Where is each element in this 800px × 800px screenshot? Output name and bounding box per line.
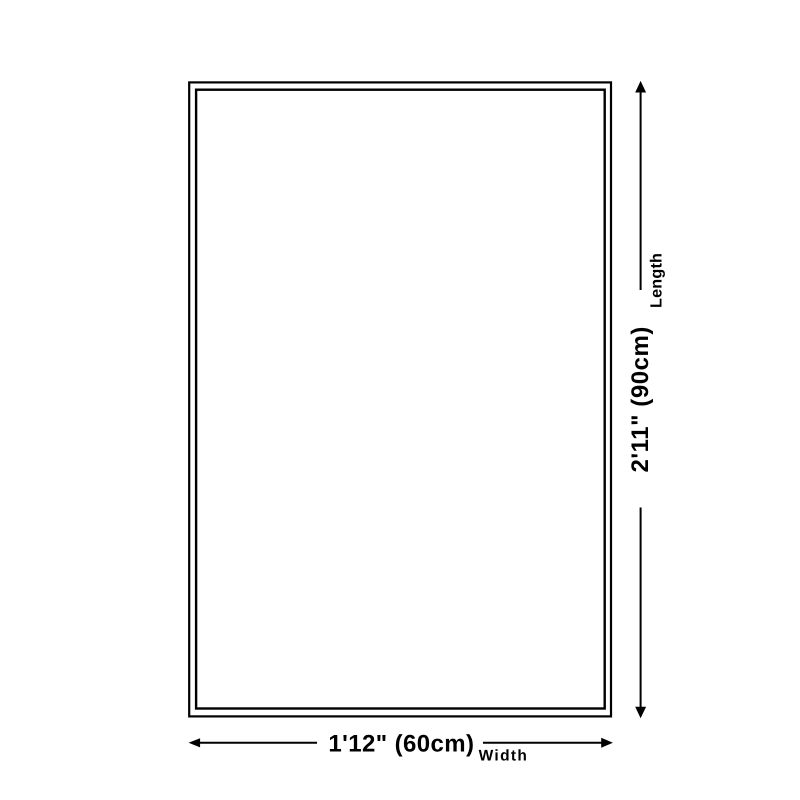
- svg-text:Width: Width: [479, 748, 529, 765]
- svg-text:2'11" (90cm): 2'11" (90cm): [627, 326, 654, 472]
- svg-text:Length: Length: [647, 253, 665, 308]
- svg-text:1'12" (60cm): 1'12" (60cm): [328, 730, 474, 757]
